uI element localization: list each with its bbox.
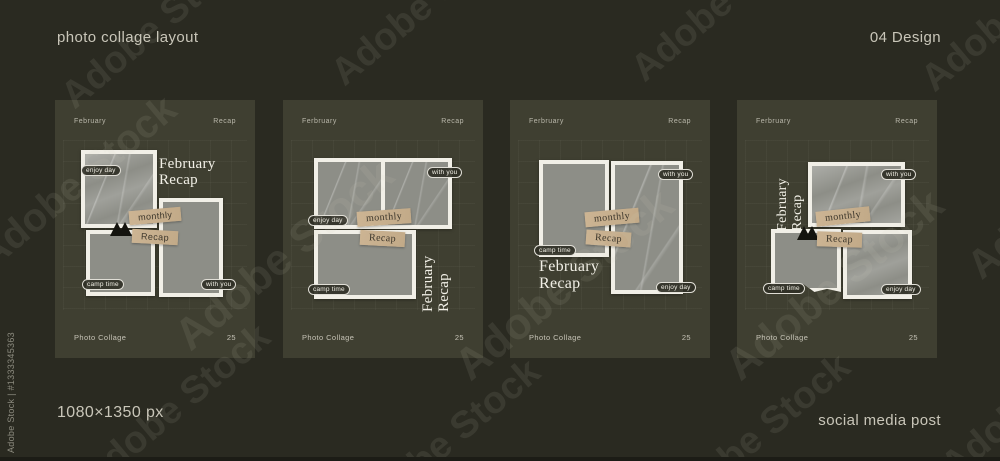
card-title-line2: Recap — [436, 222, 452, 312]
card-footer: Photo Collage 25 — [302, 333, 464, 342]
bottom-edge-strip — [0, 457, 1000, 461]
card-footer-right: 25 — [909, 333, 918, 342]
tape-label-recap: Recap — [586, 229, 632, 247]
sticker-camp-time: camp time — [308, 284, 350, 295]
card-footer: Photo Collage 25 — [74, 333, 236, 342]
adobe-stock-watermark: Adobe Stock — [653, 345, 859, 461]
stock-preview-image: photo collage layout 04 Design 1080×1350… — [0, 0, 1000, 461]
sticker-enjoy-day: enjoy day — [308, 215, 348, 226]
sticker-with-you: with you — [201, 279, 236, 290]
card-header-right: Recap — [895, 118, 918, 125]
template-card-1: February Recap February Recap monthly Re… — [55, 100, 255, 358]
page-title: photo collage layout — [57, 29, 198, 46]
card-header: Ferbruary Recap — [529, 118, 691, 125]
card-title: February Recap — [159, 156, 216, 188]
stock-id-watermark: Adobe Stock | #1333345363 — [6, 332, 16, 453]
card-title-line1: February — [539, 258, 599, 275]
sticker-camp-time: camp time — [763, 283, 805, 294]
card-title-line1: February — [159, 156, 216, 172]
adobe-stock-watermark: Adobe Stock — [959, 97, 1000, 289]
adobe-stock-watermark: Adobe Stock — [623, 0, 829, 91]
card-footer-right: 25 — [455, 333, 464, 342]
card-title-line1: February — [420, 222, 436, 312]
card-header: Ferbruary Recap — [756, 118, 918, 125]
sticker-with-you: with you — [658, 169, 693, 180]
card-title-line2: Recap — [159, 172, 216, 188]
card-footer: Photo Collage 25 — [756, 333, 918, 342]
card-footer-left: Photo Collage — [529, 333, 581, 342]
photo-frame — [611, 161, 683, 294]
card-footer: Photo Collage 25 — [529, 333, 691, 342]
card-title-vertical: February Recap — [420, 222, 452, 312]
card-header-right: Recap — [668, 118, 691, 125]
card-header-left: Ferbruary — [756, 118, 791, 125]
card-footer-right: 25 — [227, 333, 236, 342]
adobe-stock-watermark: Adobe Stock — [343, 350, 549, 461]
card-footer-right: 25 — [682, 333, 691, 342]
card-header: February Recap — [74, 118, 236, 125]
adobe-stock-watermark: Adobe Stock — [323, 0, 529, 95]
dimensions-label: 1080×1350 px — [57, 404, 164, 422]
usage-label: social media post — [818, 412, 941, 429]
card-header-right: Recap — [213, 118, 236, 125]
card-title-line2: Recap — [539, 275, 599, 292]
sticker-camp-time: camp time — [82, 279, 124, 290]
sticker-with-you: with you — [881, 169, 916, 180]
design-number-label: 04 Design — [870, 29, 941, 46]
card-header: Ferbruary Recap — [302, 118, 464, 125]
card-footer-left: Photo Collage — [756, 333, 808, 342]
sticker-enjoy-day: enjoy day — [656, 282, 696, 293]
card-header-right: Recap — [441, 118, 464, 125]
card-header-left: Ferbruary — [529, 118, 564, 125]
sticker-camp-time: camp time — [534, 245, 576, 256]
tape-label-recap: Recap — [360, 230, 406, 247]
tape-label-recap: Recap — [132, 229, 179, 245]
card-title-vertical: February Recap — [775, 159, 805, 231]
sticker-with-you: with you — [427, 167, 462, 178]
photo-placeholder — [615, 165, 679, 290]
adobe-stock-watermark: Adobe Stock — [913, 0, 1000, 101]
card-title: February Recap — [539, 258, 599, 292]
card-footer-left: Photo Collage — [302, 333, 354, 342]
template-card-3: Ferbruary Recap February Recap monthly R… — [510, 100, 710, 358]
card-header-left: February — [74, 118, 106, 125]
card-title-line1: February — [775, 159, 790, 231]
template-card-2: Ferbruary Recap February Recap monthly R… — [283, 100, 483, 358]
sticker-enjoy-day: enjoy day — [81, 165, 121, 176]
tape-label-recap: Recap — [817, 231, 862, 248]
card-footer-left: Photo Collage — [74, 333, 126, 342]
card-header-left: Ferbruary — [302, 118, 337, 125]
adobe-stock-watermark: Adobe Stock — [933, 305, 1000, 461]
card-title-line2: Recap — [790, 159, 805, 231]
template-card-4: Ferbruary Recap February Recap monthly R… — [737, 100, 937, 358]
sticker-enjoy-day: enjoy day — [881, 284, 921, 295]
